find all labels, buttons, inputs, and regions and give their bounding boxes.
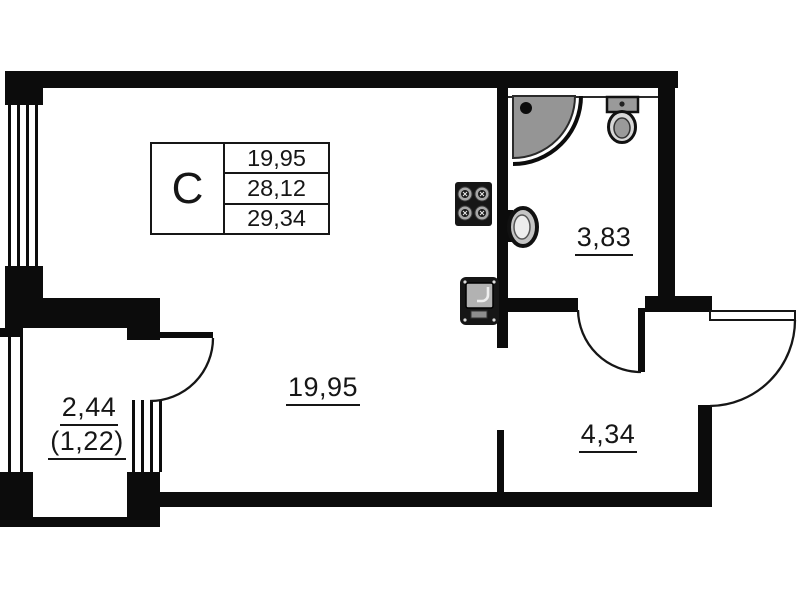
balcony-area-label: 2,44 bbox=[19, 392, 159, 426]
apartment-type-cell: C bbox=[152, 144, 225, 233]
plan-graphics bbox=[0, 0, 799, 600]
entry-door-swing bbox=[710, 320, 795, 406]
floor-plan: C 19,95 28,12 29,34 19,95 3,83 4,34 2,44… bbox=[0, 0, 799, 600]
apartment-legend-table: C 19,95 28,12 29,34 bbox=[150, 142, 330, 235]
apartment-area-rows: 19,95 28,12 29,34 bbox=[225, 144, 328, 233]
shower-drain bbox=[520, 102, 532, 114]
stove-4-burner-icon bbox=[455, 182, 492, 226]
legend-area-total: 29,34 bbox=[225, 203, 328, 233]
kitchen-sink-icon bbox=[460, 277, 499, 325]
toilet-icon bbox=[607, 97, 638, 143]
bathroom-door-swing bbox=[578, 310, 641, 372]
legend-area-living: 19,95 bbox=[225, 144, 328, 172]
entry-door-leaf bbox=[710, 311, 795, 320]
balcony-reduced-area-label: (1,22) bbox=[17, 426, 157, 460]
corner-shower-icon bbox=[513, 96, 581, 164]
bathroom-area-label: 3,83 bbox=[534, 222, 674, 256]
legend-area-apartment: 28,12 bbox=[225, 172, 328, 202]
balcony-door-swing bbox=[150, 338, 213, 401]
living-room-area-label: 19,95 bbox=[253, 372, 393, 406]
wash-basin-icon bbox=[505, 208, 537, 246]
hallway-area-label: 4,34 bbox=[538, 419, 678, 453]
